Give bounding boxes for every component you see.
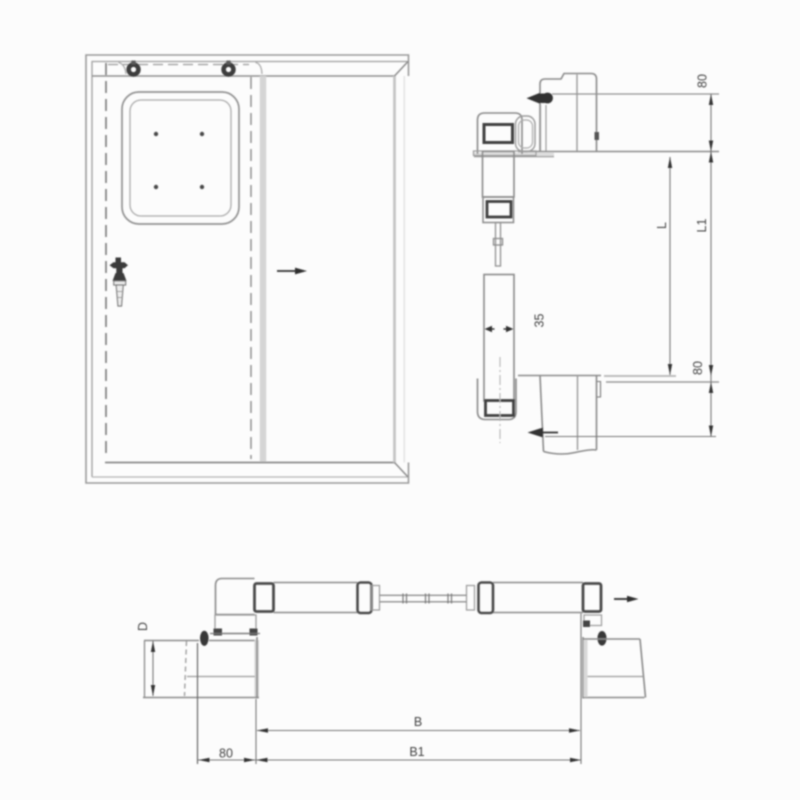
svg-text:B1: B1: [409, 745, 424, 759]
svg-text:D: D: [136, 622, 150, 631]
svg-text:L1: L1: [695, 219, 709, 233]
svg-text:80: 80: [219, 747, 233, 761]
svg-text:80: 80: [691, 361, 705, 375]
svg-text:80: 80: [696, 74, 710, 88]
svg-text:L: L: [655, 222, 669, 229]
svg-text:35: 35: [533, 314, 547, 328]
svg-text:B: B: [414, 715, 422, 729]
